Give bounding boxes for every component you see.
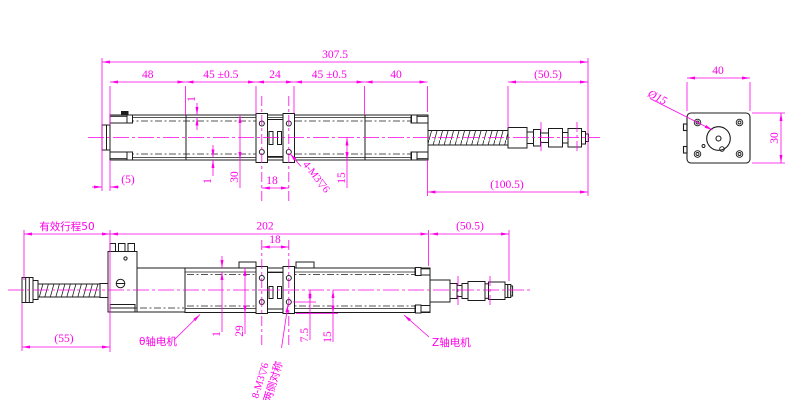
side-tab xyxy=(684,124,688,131)
dim-height: 30 xyxy=(769,132,781,144)
bottom-view xyxy=(22,244,513,314)
dim-screw-length: (55) xyxy=(54,333,73,345)
dim-connector: (50.5) xyxy=(456,221,484,233)
dim-half-height: 15 xyxy=(322,331,334,343)
label-z-motor: Z轴电机 xyxy=(432,336,471,349)
dim-step-top: 1 xyxy=(186,96,198,102)
dim-body-height: 30 xyxy=(229,171,241,183)
top-view xyxy=(102,112,589,163)
sensor-bump xyxy=(122,112,129,116)
dim-seg-coupling: 24 xyxy=(269,69,281,81)
pin-hole xyxy=(124,257,127,260)
screw-thread xyxy=(38,284,108,297)
dim-hole-pitch: 18 xyxy=(269,234,281,246)
dim-effective-stroke: 有效行程50 xyxy=(39,220,94,233)
dim-seg-end: 40 xyxy=(390,69,402,81)
left-clamp-slot-top xyxy=(110,116,127,123)
dim-width: 40 xyxy=(712,65,724,77)
dim-bore-dia: Ø15 xyxy=(645,88,669,108)
note-thread-bottom: 8-M3▽6 两侧对称 xyxy=(250,356,285,400)
dim-seg-right-stage: 45 ±0.5 xyxy=(312,69,347,81)
dim-seg-left-stage: 45 ±0.5 xyxy=(203,69,238,81)
dim-body-height: 29 xyxy=(234,325,246,337)
cad-drawing-canvas: 307.5 48 45 ±0.5 24 45 ±0.5 40 (50.5) (1… xyxy=(0,0,800,400)
dim-hole-pitch: 18 xyxy=(266,175,278,187)
bottom-cable-connector xyxy=(430,280,513,302)
dim-step-bottom: 1 xyxy=(202,178,214,184)
dim-connector: (50.5) xyxy=(534,69,562,81)
side-tab xyxy=(684,147,688,154)
dim-stub: (5) xyxy=(121,174,135,186)
dim-step-top: 1 xyxy=(211,331,223,337)
left-clamp-slot-bottom xyxy=(110,152,127,159)
dim-half-height: 15 xyxy=(336,172,348,184)
dim-overall: 307.5 xyxy=(322,49,348,61)
dim-hole-offset: 7.5 xyxy=(299,328,311,343)
leader-z-motor xyxy=(404,315,429,337)
linear-actuator-drawing: 307.5 48 45 ±0.5 24 45 ±0.5 40 (50.5) (1… xyxy=(0,0,800,400)
note-thread-top: 4-M3▽6 xyxy=(300,160,331,196)
leader-theta-motor xyxy=(174,315,200,341)
theta-motor-block xyxy=(108,244,185,313)
label-theta-motor: θ轴电机 xyxy=(139,335,177,348)
dim-body-length: 202 xyxy=(256,221,274,233)
dim-seg-motor: 48 xyxy=(142,69,154,81)
dim-cable-assembly: (100.5) xyxy=(490,179,524,191)
